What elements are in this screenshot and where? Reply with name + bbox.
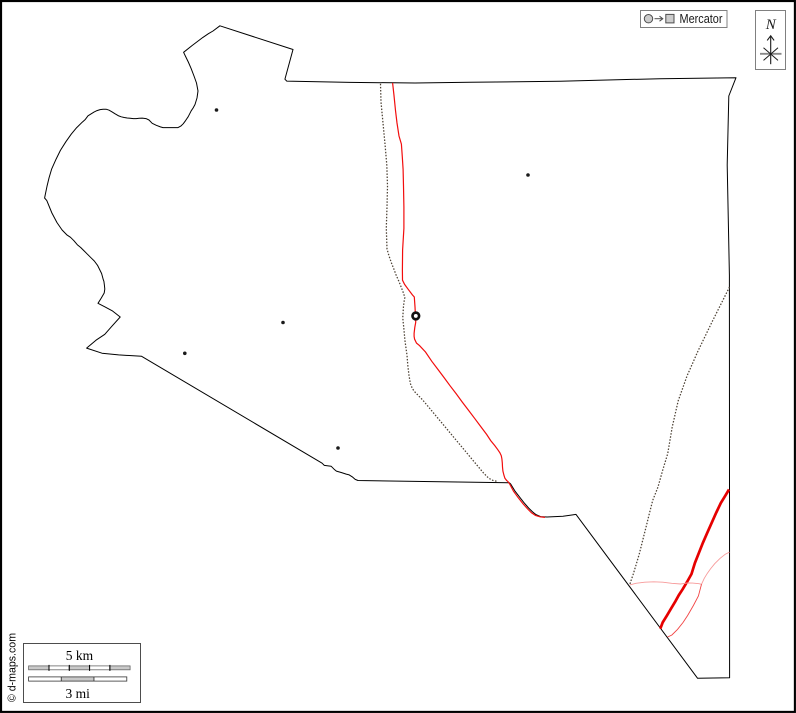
- svg-text:N: N: [765, 17, 777, 33]
- svg-text:5 km: 5 km: [66, 648, 94, 663]
- svg-text:Mercator: Mercator: [680, 11, 724, 26]
- svg-text:3 mi: 3 mi: [66, 686, 91, 701]
